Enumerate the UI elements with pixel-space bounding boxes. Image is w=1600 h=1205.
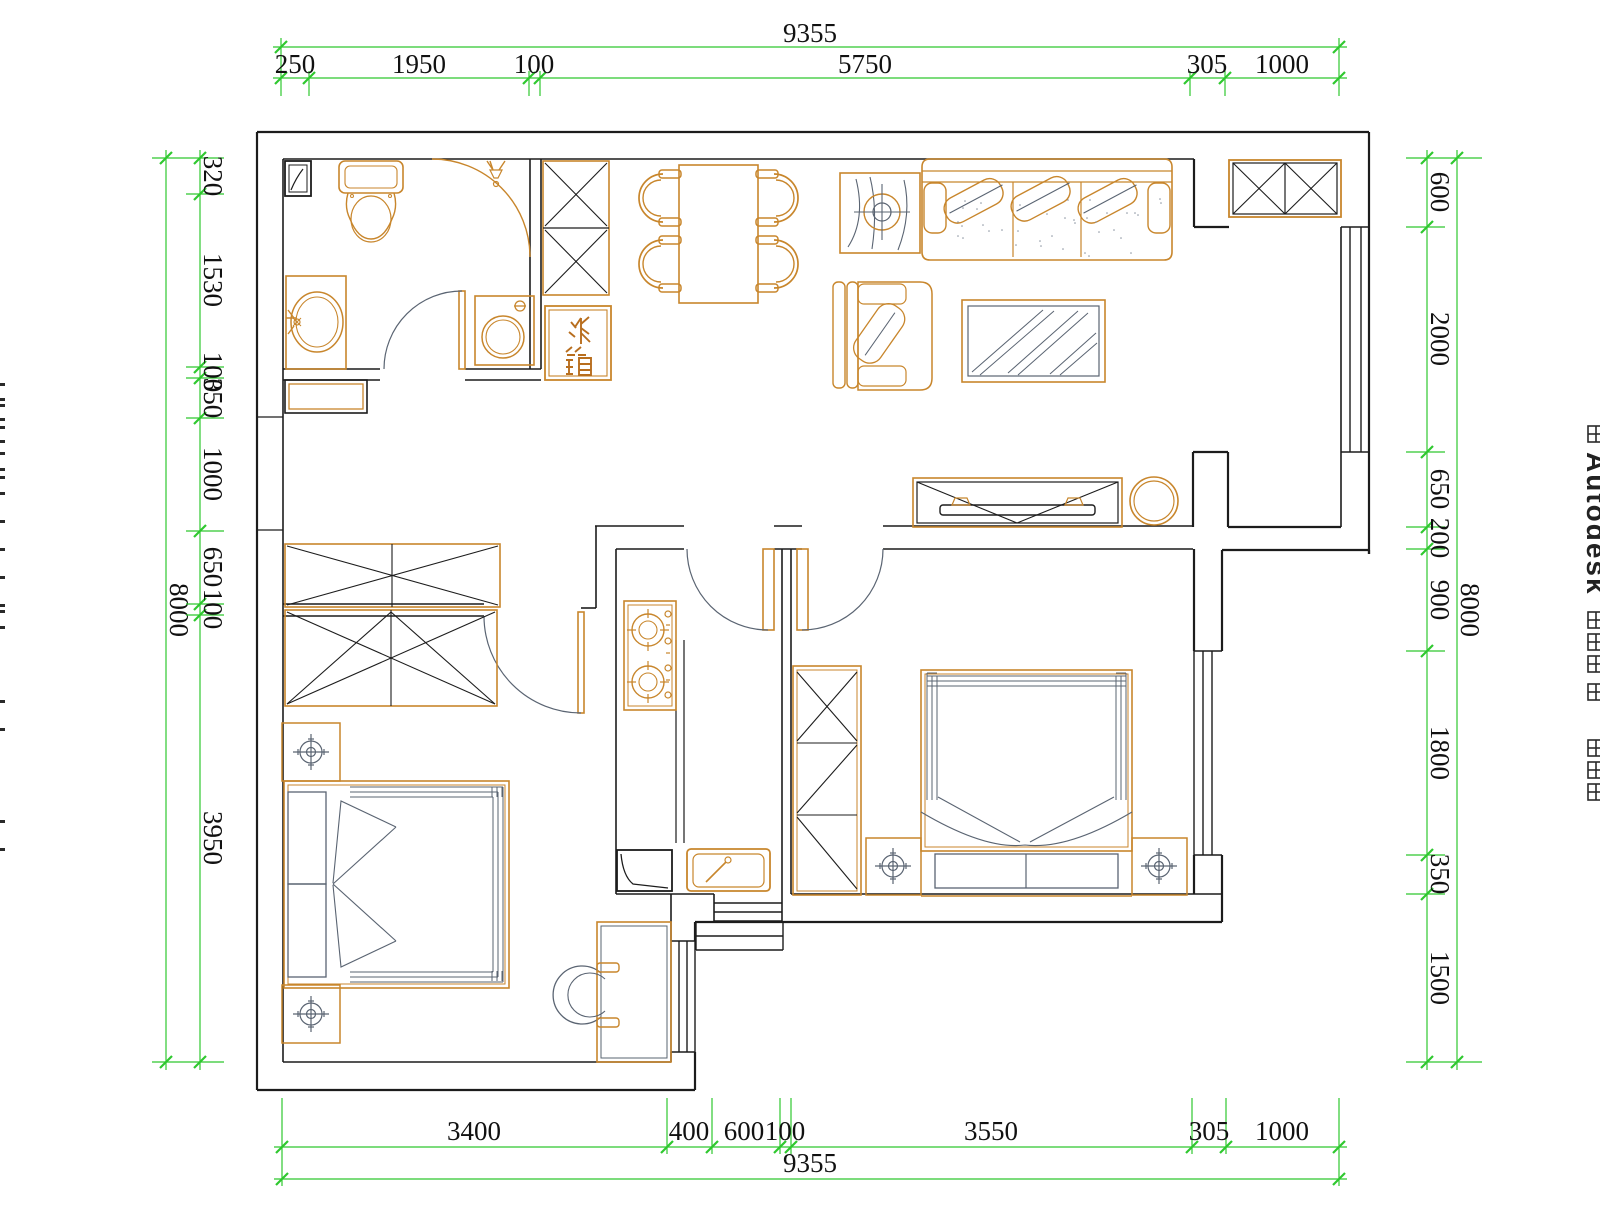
svg-text:600: 600 bbox=[1425, 172, 1455, 213]
svg-text:Autodesk: Autodesk bbox=[1581, 452, 1600, 596]
svg-text:3550: 3550 bbox=[964, 1116, 1018, 1146]
svg-text:320: 320 bbox=[198, 156, 228, 197]
svg-text:1000: 1000 bbox=[1255, 49, 1309, 79]
svg-text:1950: 1950 bbox=[392, 49, 446, 79]
svg-text:1530: 1530 bbox=[198, 253, 228, 307]
svg-text:305: 305 bbox=[1189, 1116, 1230, 1146]
svg-text:1000: 1000 bbox=[1255, 1116, 1309, 1146]
svg-text:350: 350 bbox=[1425, 854, 1455, 895]
svg-text:305: 305 bbox=[1187, 49, 1228, 79]
svg-text:650: 650 bbox=[1425, 469, 1455, 510]
svg-text:9355: 9355 bbox=[783, 1148, 837, 1178]
svg-text:3400: 3400 bbox=[447, 1116, 501, 1146]
svg-text:1000: 1000 bbox=[198, 447, 228, 501]
svg-text:350: 350 bbox=[198, 378, 228, 419]
svg-text:600: 600 bbox=[724, 1116, 765, 1146]
svg-text:100: 100 bbox=[514, 49, 555, 79]
svg-text:3950: 3950 bbox=[198, 811, 228, 865]
svg-text:8000: 8000 bbox=[1455, 583, 1485, 637]
svg-text:200: 200 bbox=[1425, 518, 1455, 559]
svg-text:1800: 1800 bbox=[1425, 726, 1455, 780]
svg-text:2000: 2000 bbox=[1425, 312, 1455, 366]
svg-text:8000: 8000 bbox=[164, 583, 194, 637]
svg-text:250: 250 bbox=[275, 49, 316, 79]
svg-text:5750: 5750 bbox=[838, 49, 892, 79]
svg-text:650: 650 bbox=[198, 547, 228, 588]
svg-text:400: 400 bbox=[669, 1116, 710, 1146]
svg-text:1500: 1500 bbox=[1425, 951, 1455, 1005]
svg-text:100: 100 bbox=[765, 1116, 806, 1146]
svg-text:100: 100 bbox=[198, 589, 228, 630]
svg-text:900: 900 bbox=[1425, 580, 1455, 621]
svg-text:9355: 9355 bbox=[783, 18, 837, 48]
